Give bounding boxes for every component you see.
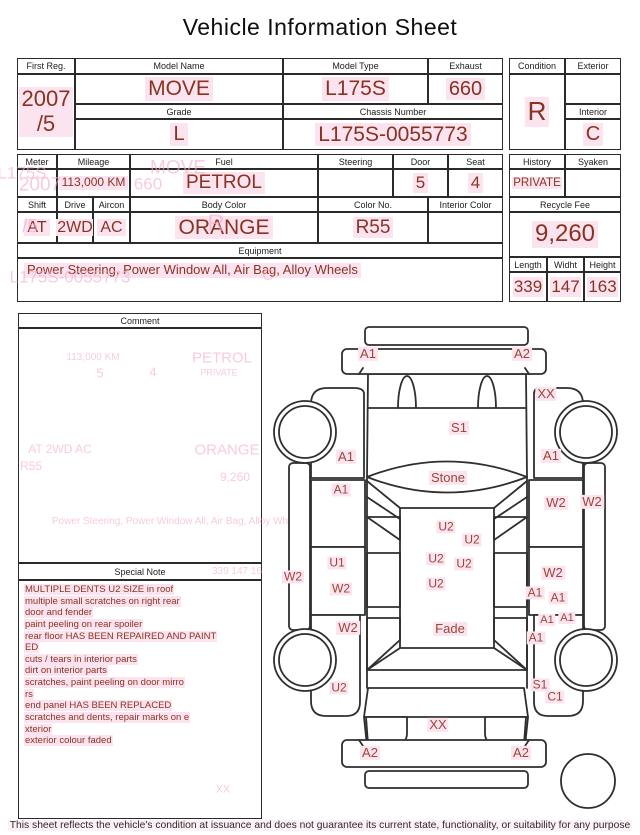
diagram-label-w2: W2 xyxy=(336,621,360,635)
recycle-fee-value: 9,260 xyxy=(509,212,621,257)
fender-front-left xyxy=(311,388,364,478)
length-header: Length xyxy=(509,257,547,272)
rear-window xyxy=(367,648,527,670)
diagram-label-a2: A2 xyxy=(511,746,531,760)
seat-header: Seat xyxy=(448,154,503,169)
fuel-value: PETROL xyxy=(130,169,318,197)
vehicle-information-sheet: Vehicle Information Sheet First Reg. Mod… xyxy=(0,0,640,835)
door-value: 5 xyxy=(393,169,448,197)
door-rear-right xyxy=(529,547,583,615)
front-bumper-notches xyxy=(359,368,529,374)
rear-bar xyxy=(365,771,528,788)
recycle-fee-header: Recycle Fee xyxy=(509,197,621,212)
interior-color-header: Interior Color xyxy=(428,197,503,212)
mileage-value: 113,000 KM xyxy=(57,169,130,197)
diagram-label-a2: A2 xyxy=(512,347,532,361)
model-name-value: MOVE xyxy=(75,74,283,104)
comment-body xyxy=(18,328,262,563)
diagram-label-u2: U2 xyxy=(426,577,445,590)
diagram-label-w2: W2 xyxy=(282,570,304,583)
diagram-label-u2: U2 xyxy=(454,557,473,570)
model-type-header: Model Type xyxy=(283,58,428,74)
fender-front-right xyxy=(534,388,583,478)
diagram-label-a1: A1 xyxy=(541,449,561,463)
aircon-value: AC xyxy=(93,212,130,243)
footer-disclaimer: This sheet reflects the vehicle's condit… xyxy=(0,820,640,831)
mileage-header: Mileage xyxy=(57,154,130,169)
special-note-line: cuts / tears in interior parts xyxy=(24,654,260,666)
trunk-lid xyxy=(364,688,528,717)
special-note-lines: MULTIPLE DENTS U2 SIZE in roofmultiple s… xyxy=(24,584,260,747)
diagram-label-u2: U2 xyxy=(329,681,348,694)
width-header: Widht xyxy=(547,257,584,272)
special-note-line: xterior xyxy=(24,724,260,736)
shift-value: AT xyxy=(17,212,57,243)
drive-header: Drive xyxy=(57,197,93,212)
exhaust-value: 660 xyxy=(428,74,503,104)
model-type-value: L175S xyxy=(283,74,428,104)
window-tri-right xyxy=(494,517,527,540)
syaken-header: Syaken xyxy=(565,154,621,169)
steering-header: Steering xyxy=(318,154,393,169)
grade-header: Grade xyxy=(75,104,283,119)
body-color-header: Body Color xyxy=(130,197,318,212)
diagram-label-w2: W2 xyxy=(544,496,568,510)
comment-header: Comment xyxy=(18,313,262,328)
history-header: History xyxy=(509,154,565,169)
special-note-line: door and fender xyxy=(24,607,260,619)
diagram-label-fade: Fade xyxy=(433,622,467,636)
diagram-label-w2: W2 xyxy=(330,582,352,595)
hood-arch-right xyxy=(478,376,496,408)
height-header: Height xyxy=(584,257,621,272)
condition-header: Condition xyxy=(509,58,565,74)
diagram-label-a1: A1 xyxy=(358,347,378,361)
diagram-label-s1: S1 xyxy=(449,421,469,435)
diagram-label-a2: A2 xyxy=(360,746,380,760)
rocker-left xyxy=(289,463,310,630)
color-no-value: R55 xyxy=(318,212,428,243)
diagram-label-stone: Stone xyxy=(429,471,467,485)
page-title: Vehicle Information Sheet xyxy=(0,14,640,41)
meter-header: Meter xyxy=(17,154,57,169)
exhaust-header: Exhaust xyxy=(428,58,503,74)
body-color-value: ORANGE xyxy=(130,212,318,243)
width-value: 147 xyxy=(547,272,584,302)
fuel-header: Fuel xyxy=(130,154,318,169)
chassis-number-header: Chassis Number xyxy=(283,104,503,119)
special-note-line: exterior colour faded xyxy=(24,735,260,747)
equipment-header: Equipment xyxy=(17,243,503,258)
aircon-header: Aircon xyxy=(93,197,130,212)
door-header: Door xyxy=(393,154,448,169)
drive-value: 2WD xyxy=(57,212,93,243)
special-note-line: dirt on interior parts xyxy=(24,665,260,677)
shift-header: Shift xyxy=(17,197,57,212)
special-note-line: multiple small scratches on right rear xyxy=(24,596,260,608)
diagram-label-a1: A1 xyxy=(538,614,555,626)
diagram-label-a1: A1 xyxy=(527,631,546,644)
spare-tire xyxy=(561,754,615,808)
diagram-label-w2: W2 xyxy=(541,566,565,580)
special-note-line: ED xyxy=(24,642,260,654)
taillight-left xyxy=(366,717,407,744)
special-note-line: paint peeling on rear spoiler xyxy=(24,619,260,631)
window-rect-right xyxy=(494,553,527,607)
diagram-label-u2: U2 xyxy=(426,552,445,565)
special-note-header: Special Note xyxy=(18,563,262,580)
special-note-line: scratches, paint peeling on door mirro xyxy=(24,677,260,689)
window-tri-left xyxy=(367,517,400,540)
special-note-line: scratches and dents, repair marks on e xyxy=(24,712,260,724)
steering-value xyxy=(318,169,393,197)
diagram-label-u2: U2 xyxy=(436,520,455,533)
height-value: 163 xyxy=(584,272,621,302)
window-rect-left xyxy=(367,553,400,607)
wheel-front-left xyxy=(274,401,336,463)
condition-value: R xyxy=(509,74,565,150)
rocker-right xyxy=(584,463,605,630)
exterior-value xyxy=(565,74,621,104)
seat-value: 4 xyxy=(448,169,503,197)
diagram-label-c1: C1 xyxy=(545,690,564,703)
exterior-header: Exterior xyxy=(565,58,621,74)
history-value: PRIVATE xyxy=(509,169,565,197)
diagram-label-a1: A1 xyxy=(526,586,545,599)
meter-value xyxy=(17,169,57,197)
diagram-label-xx: XX xyxy=(427,718,448,732)
diagram-label-u1: U1 xyxy=(327,556,346,569)
diagram-label-w2: W2 xyxy=(580,495,604,509)
interior-color-value xyxy=(428,212,503,243)
interior-value: C xyxy=(565,119,621,150)
diagram-label-a1: A1 xyxy=(549,591,568,604)
front-bar xyxy=(365,327,528,345)
color-no-header: Color No. xyxy=(318,197,428,212)
body-side-left xyxy=(367,374,368,688)
diagram-label-xx: XX xyxy=(535,387,556,401)
diagram-label-a1: A1 xyxy=(336,450,356,464)
diagram-label-a1: A1 xyxy=(558,612,575,624)
equipment-value: Power Steering, Power Window All, Air Ba… xyxy=(17,258,503,302)
first-reg-value: 2007 /5 xyxy=(17,74,75,150)
grade-value: L xyxy=(75,119,283,150)
door-front-right xyxy=(529,480,583,547)
pillar-lines xyxy=(367,481,527,519)
chassis-number-value: L175S-0055773 xyxy=(283,119,503,150)
hood-arch-left xyxy=(398,376,416,408)
special-note-line: MULTIPLE DENTS U2 SIZE in roof xyxy=(24,584,260,596)
diagram-label-a1: A1 xyxy=(332,483,351,496)
taillight-right xyxy=(485,717,526,744)
wheel-rear-right xyxy=(555,629,617,691)
interior-header: Interior xyxy=(565,104,621,119)
wheel-front-right xyxy=(555,401,617,463)
model-name-header: Model Name xyxy=(75,58,283,74)
syaken-value xyxy=(565,169,621,197)
window-quad-left xyxy=(367,618,400,670)
length-value: 339 xyxy=(509,272,547,302)
rear-bumper-notches xyxy=(359,740,529,746)
special-note-line: rear floor HAS BEEN REPAIRED AND PAINT xyxy=(24,631,260,643)
special-note-line: end panel HAS BEEN REPLACED xyxy=(24,700,260,712)
window-quad-right xyxy=(494,618,527,670)
diagram-label-u2: U2 xyxy=(462,533,481,546)
first-reg-header: First Reg. xyxy=(17,58,75,74)
wheel-rear-left xyxy=(274,629,336,691)
special-note-line: rs xyxy=(24,689,260,701)
